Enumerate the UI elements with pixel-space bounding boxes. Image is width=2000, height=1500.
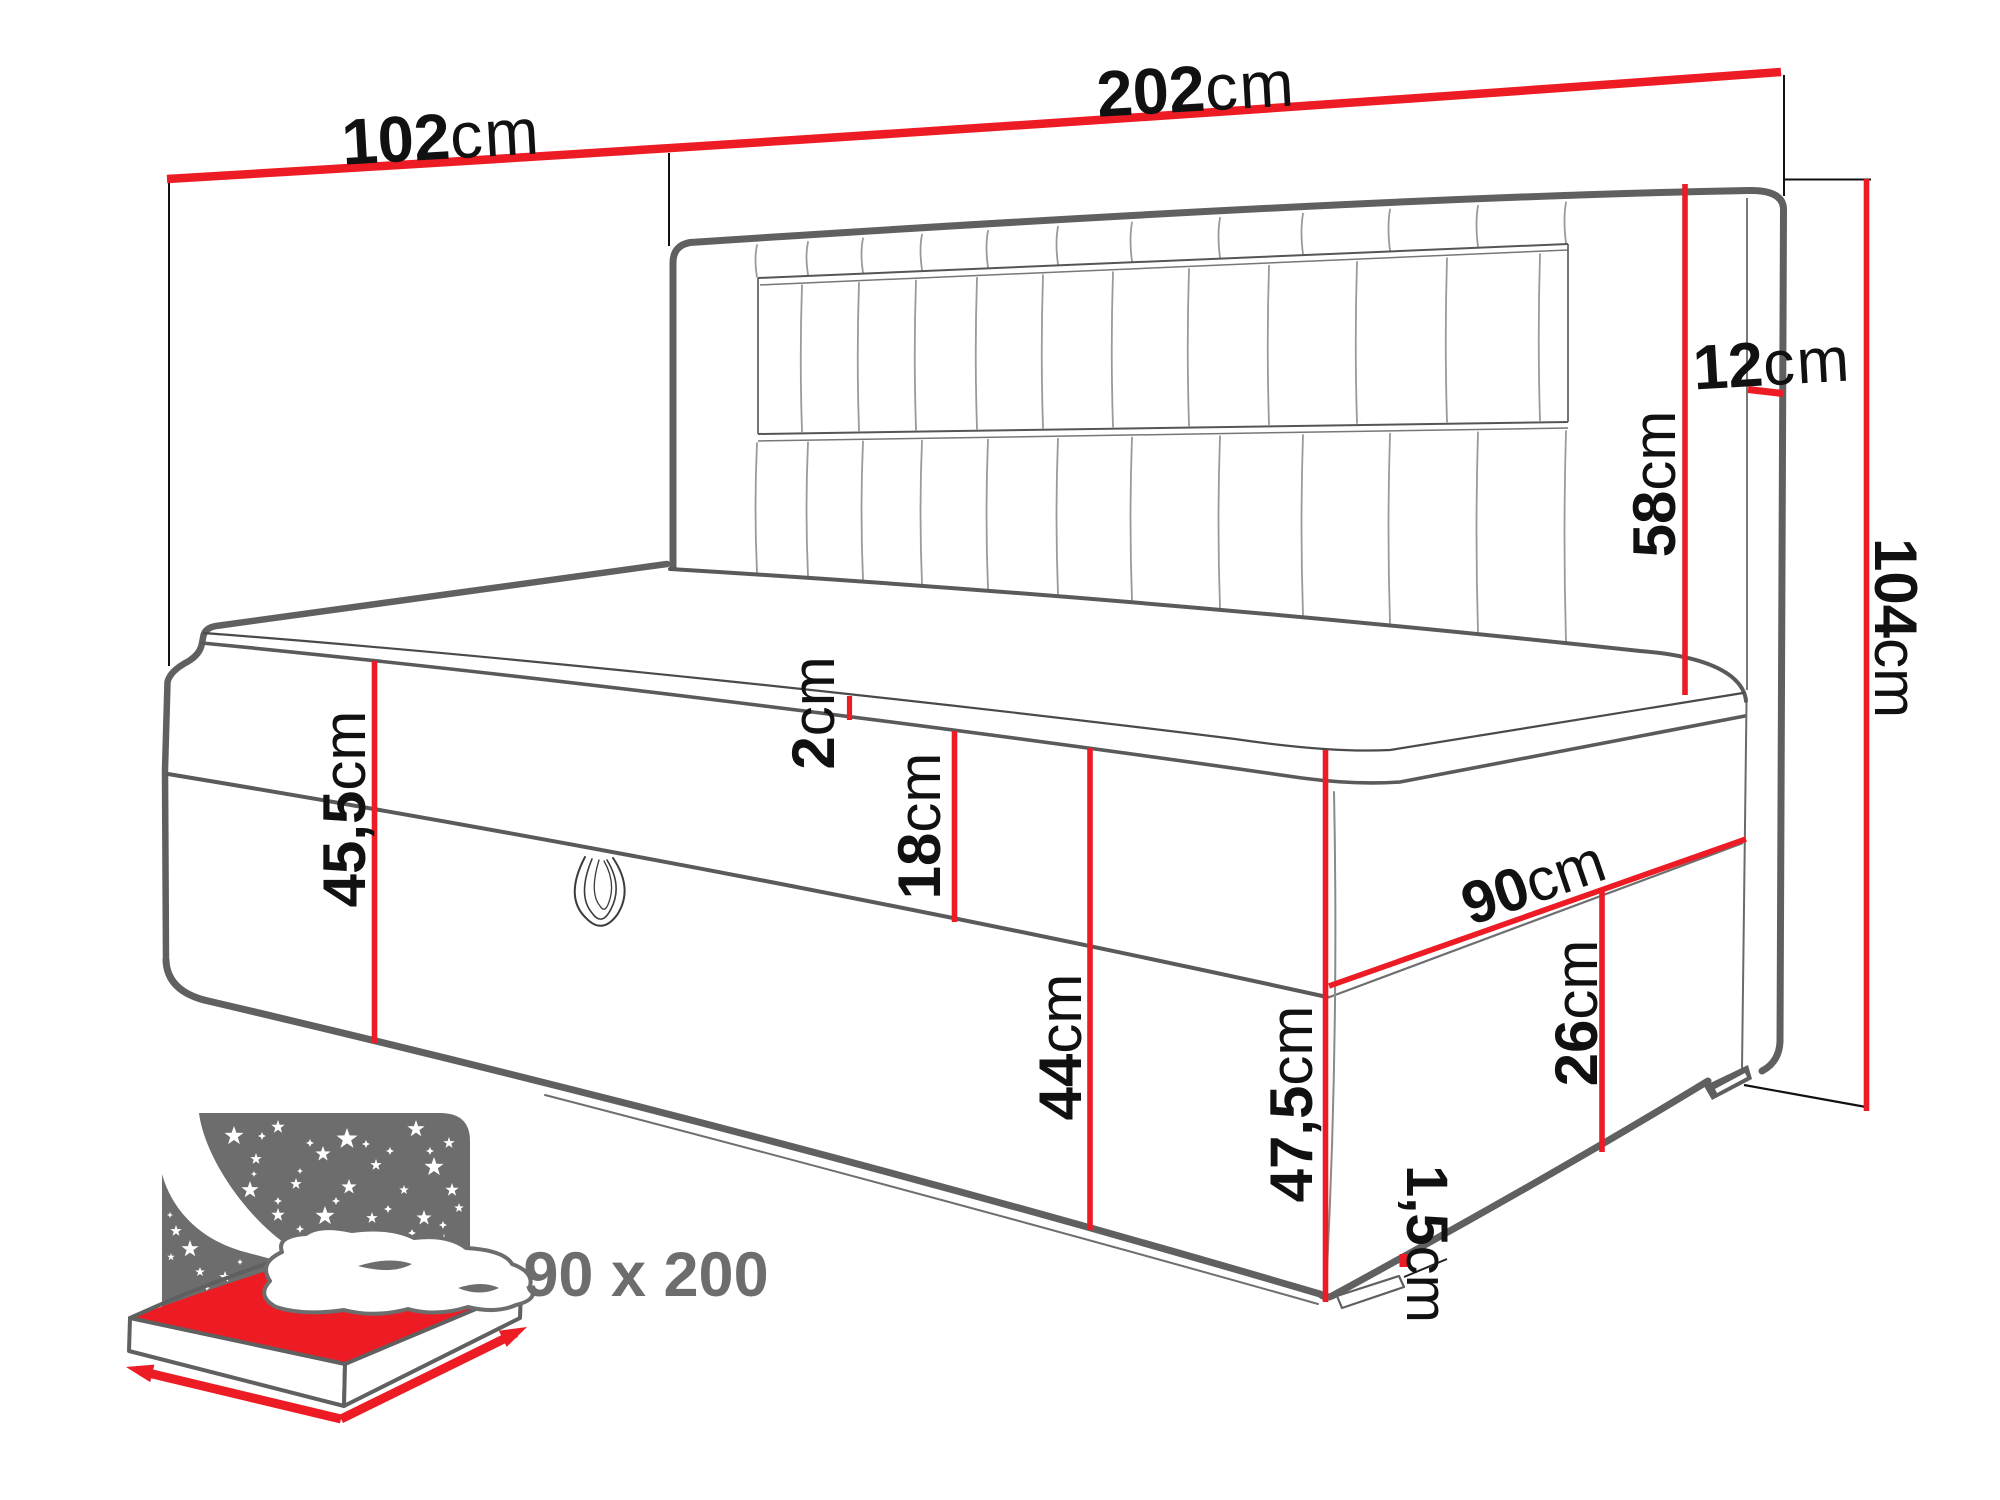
svg-text:26cm: 26cm <box>1543 940 1610 1087</box>
svg-text:47,5cm: 47,5cm <box>1258 1006 1325 1203</box>
svg-text:58cm: 58cm <box>1621 411 1688 558</box>
svg-text:44cm: 44cm <box>1027 974 1094 1121</box>
svg-text:90 x 200: 90 x 200 <box>523 1240 768 1310</box>
svg-text:45,5cm: 45,5cm <box>311 711 378 908</box>
svg-text:202cm: 202cm <box>1095 46 1298 130</box>
svg-text:102cm: 102cm <box>340 94 543 178</box>
svg-text:2cm: 2cm <box>780 656 847 769</box>
svg-text:12cm: 12cm <box>1691 325 1853 404</box>
svg-text:18cm: 18cm <box>886 753 953 900</box>
svg-text:1,5cm: 1,5cm <box>1395 1165 1460 1323</box>
svg-text:104cm: 104cm <box>1863 538 1930 718</box>
